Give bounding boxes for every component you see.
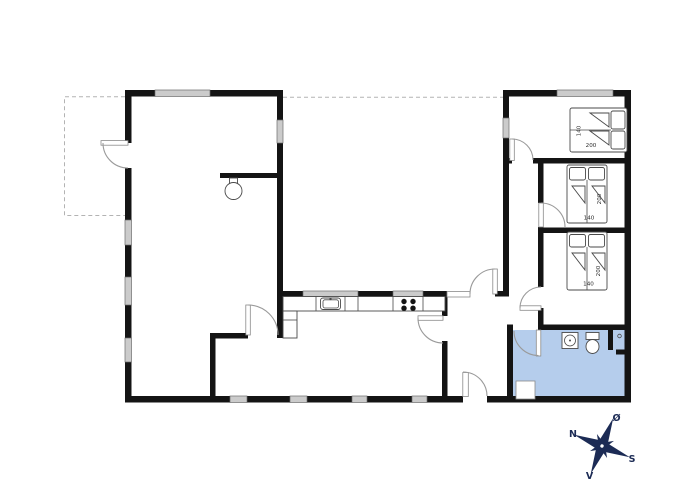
bed-width-label: 140 (577, 125, 583, 136)
door-leaf (539, 203, 544, 227)
window (393, 291, 423, 297)
bedroom-1-bed: 140 200 (570, 108, 627, 152)
window (290, 396, 307, 403)
wood-stove-icon (225, 178, 242, 200)
stove-body (225, 183, 242, 200)
bed-width-label: 140 (583, 282, 594, 288)
entrance-door-leaf (463, 373, 469, 397)
wall-segment (442, 341, 448, 396)
floor-plan-page: 140 200 200 140 200 140 (0, 0, 700, 500)
door-arc (418, 318, 443, 343)
door-leaf (520, 306, 541, 311)
wall-segment (538, 325, 631, 331)
door-leaf (510, 139, 515, 161)
door-opening (124, 143, 133, 168)
door-leaf (246, 305, 251, 335)
bed-width-label: 140 (584, 216, 595, 222)
door-leaf (418, 316, 443, 321)
counter (283, 297, 445, 312)
toilet-icon (586, 340, 599, 354)
window (557, 90, 613, 97)
pillow (611, 111, 625, 129)
wall-segment (538, 163, 544, 203)
wall-segment (507, 325, 513, 397)
floor-plan-drawing: 140 200 200 140 200 140 (0, 0, 700, 500)
compass-label-south: S (629, 454, 636, 465)
window (352, 396, 367, 403)
washing-machine (516, 381, 535, 399)
pillow (570, 168, 586, 181)
bedroom-3-bed: 200 140 (567, 232, 607, 290)
counter-return (283, 311, 297, 338)
window (125, 338, 132, 362)
window (230, 396, 247, 403)
window (125, 277, 132, 305)
bed-length-label: 200 (597, 193, 603, 204)
wall-segment (125, 396, 631, 403)
door-arc (512, 139, 533, 160)
terrace-outline-dashed (65, 97, 126, 216)
window (125, 220, 132, 245)
pillow (589, 235, 605, 248)
door-arc (541, 203, 565, 227)
shower-partition-wall (608, 330, 613, 350)
pillow (570, 235, 586, 248)
compass-label-west: V (586, 471, 594, 482)
washbasin-drain (569, 340, 571, 342)
sink-tap-icon (329, 298, 331, 300)
bed-length-label: 200 (586, 143, 597, 149)
door-leaf (101, 141, 128, 146)
wall-segment (210, 333, 216, 396)
window (155, 90, 210, 97)
wall-segment (210, 333, 248, 339)
door-sidelight (447, 292, 470, 298)
wall-segment (533, 158, 631, 164)
window (503, 118, 509, 138)
doors (101, 139, 565, 397)
compass-label-east: Ø (612, 413, 620, 424)
door-leaf (493, 269, 498, 294)
pillow (611, 131, 625, 149)
bed-length-label: 200 (596, 265, 602, 276)
window (412, 396, 427, 403)
door-arc (248, 305, 278, 335)
wall-segment (220, 173, 283, 178)
compass-rose: N Ø S V (563, 407, 641, 485)
toilet-tank (586, 333, 599, 340)
window (277, 120, 283, 143)
bedroom-2-bed: 200 140 (567, 165, 607, 223)
window (303, 291, 358, 297)
pillow (589, 168, 605, 181)
door-arc (470, 269, 495, 294)
shower-partition-wall (616, 350, 625, 355)
door-arc (520, 287, 541, 308)
wall-segment (538, 227, 544, 287)
door-leaf (536, 330, 541, 356)
compass-label-north: N (569, 429, 577, 440)
